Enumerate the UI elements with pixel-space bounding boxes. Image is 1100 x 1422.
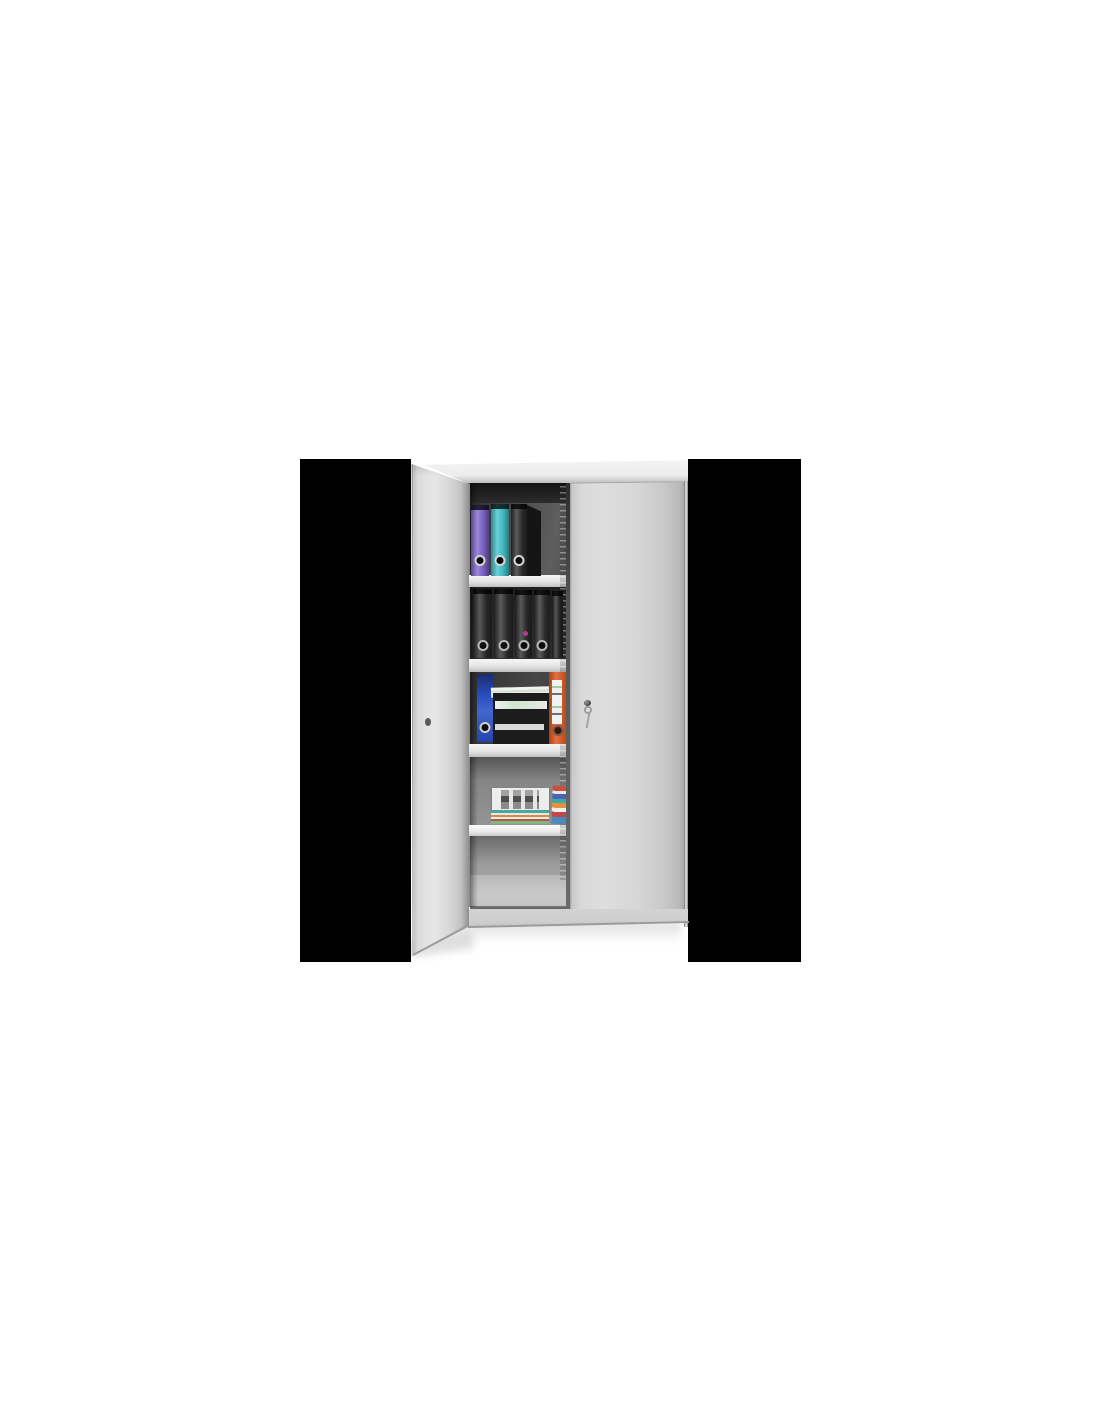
blue-binder [477, 674, 493, 742]
binder-ring-hole [498, 640, 509, 651]
binder-spine [534, 590, 550, 658]
tray-papers [495, 724, 544, 730]
shelf-3 [469, 744, 570, 757]
shelf-2 [469, 659, 570, 672]
interior-floor [470, 875, 570, 907]
binder-ring-hole [495, 555, 506, 566]
binder-ring-hole [514, 555, 525, 566]
orange-binder [549, 672, 567, 744]
binder-spine [552, 591, 563, 658]
printed-grid-sheet [501, 790, 539, 809]
compartment-5 [470, 836, 570, 907]
binder-ring-hole [477, 640, 488, 651]
binder-sticker [523, 631, 528, 636]
binder-spine [511, 504, 527, 576]
binder-ring-hole [475, 555, 486, 566]
keyhole-icon [425, 718, 431, 726]
binder-spine [494, 589, 513, 658]
cabinet-photo [411, 459, 688, 962]
pillarbox-bar-left [300, 459, 411, 962]
binder-spine [515, 590, 532, 658]
product-image [300, 459, 801, 962]
letter-tray-stack [493, 693, 549, 744]
binder-spine [491, 504, 509, 576]
page-background [0, 0, 1100, 1422]
open-left-door [411, 461, 469, 958]
binder-spine [473, 589, 492, 658]
binder-spine [471, 505, 489, 576]
binder-ring-hole [537, 640, 548, 651]
binder-ring-hole [553, 725, 564, 736]
binder-ring-hole [518, 640, 529, 651]
closed-right-door [570, 481, 684, 912]
shelf-4 [469, 825, 570, 836]
orange-binder-label [552, 680, 562, 724]
shelf-1 [469, 575, 570, 587]
document-stack-colored-edges [491, 810, 549, 824]
cabinet-top-surface [424, 460, 688, 484]
black-binder-side-panel [527, 505, 541, 576]
binder-ring-hole [480, 722, 491, 733]
pillarbox-bar-right [688, 459, 801, 962]
interior-top-shadow [470, 483, 570, 504]
tray-papers [495, 701, 547, 709]
document-stack-sheet [492, 788, 549, 811]
cabinet-right-frame [684, 481, 688, 927]
